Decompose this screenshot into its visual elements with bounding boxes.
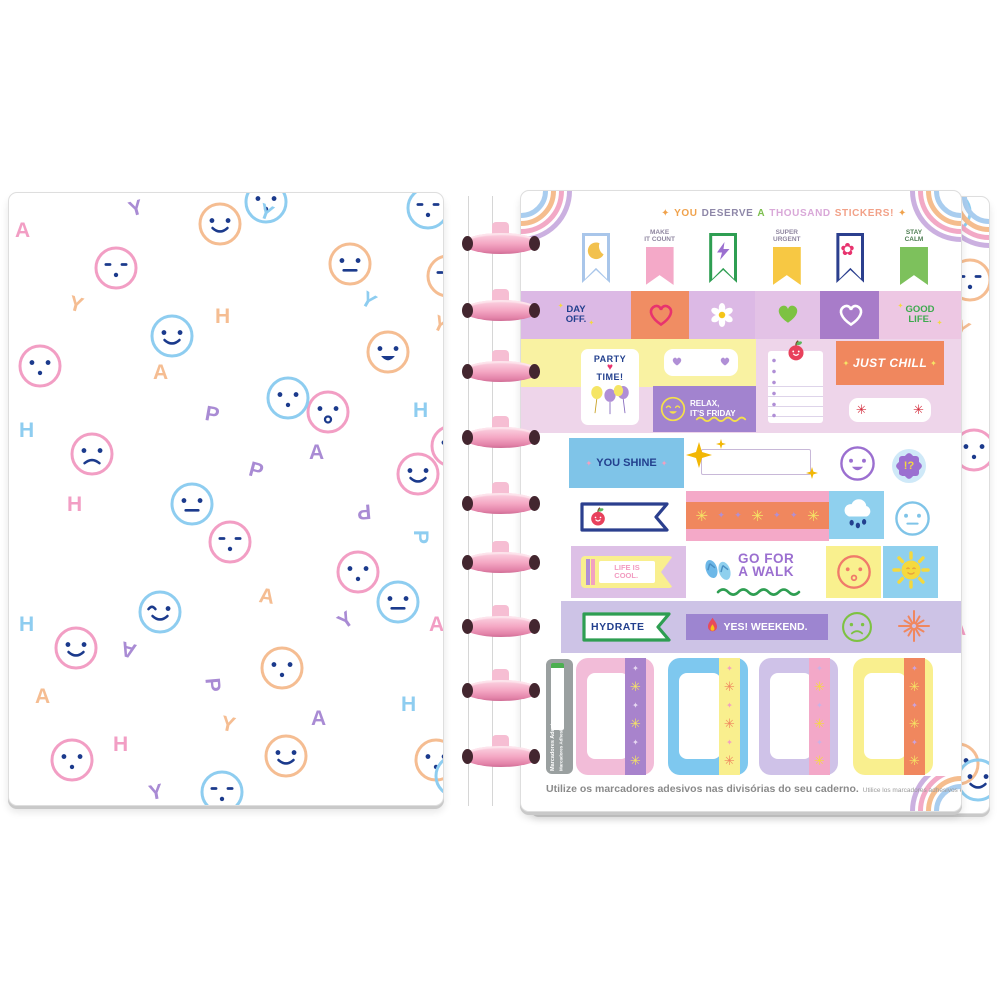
flame-icon: [706, 617, 723, 637]
tab-stripe-glyph: ✦: [911, 664, 918, 673]
disc-end: [529, 303, 540, 318]
asterisk-icon: ✳: [913, 401, 924, 419]
banner-flag: ✿: [833, 229, 867, 287]
disc-end: [462, 619, 473, 634]
pattern-letter: A: [309, 441, 324, 465]
tab-stripe: ✦✳✦✳✦✳: [719, 658, 740, 775]
pattern-letter: P: [246, 458, 266, 485]
stripe: [586, 559, 590, 585]
flip-flops-icon: [702, 555, 734, 583]
tab-marker-sticker: ✦✳✦✳✦✳: [668, 658, 748, 775]
binding-disc: [463, 361, 539, 382]
washi-glyph: ✦: [790, 510, 798, 521]
smiley-icon: [839, 445, 876, 482]
starburst-icon: [897, 609, 931, 643]
disc-end: [529, 619, 540, 634]
tab-markers-row: Marcadores Adesivos Marcadores Adhesivos…: [521, 656, 961, 776]
banner-flags-row: MAKE IT COUNTSUPER URGENT✿STAY CALM: [579, 229, 931, 287]
tab-cutout: [770, 673, 812, 759]
header-slogan: ✦YOUDESERVEATHOUSANDSTICKERS!✦: [659, 208, 909, 219]
pattern-letter: H: [67, 493, 82, 517]
notebook-product-photo: YAHYAPYHHPAPHAYAPHYAHYAPYHYA YAHYAPYHHPA…: [0, 0, 1000, 1000]
tab-marker-sticker: ✦✳✦✳✦✳: [576, 658, 654, 775]
caption-es: Utilice los marcadores adhesivos en las …: [863, 787, 962, 794]
pattern-letter: Y: [147, 780, 165, 806]
pattern-letter: H: [113, 733, 128, 757]
sticker-row-walk: LIFE IS COOL. GO FOR A WALK: [521, 546, 961, 601]
washi-glyph: ✳: [751, 507, 764, 525]
heart-icon: [775, 302, 801, 328]
tab-stripe-glyph: ✳: [630, 716, 641, 732]
apple-icon: [785, 340, 807, 362]
disc-body: [463, 427, 539, 448]
pattern-smiley-icon: [425, 253, 444, 299]
surprised-smiley-sticker: [826, 546, 881, 598]
pattern-letter: Y: [429, 311, 444, 339]
washi-glyph: ✦: [717, 510, 725, 521]
header-word: DESERVE: [702, 208, 754, 219]
tab-cutout: [587, 673, 629, 759]
banner-flag: SUPER URGENT: [770, 229, 804, 287]
banner-flag: [579, 229, 613, 287]
hydrate-sticker: HYDRATE: [581, 611, 673, 643]
banner-flag: STAY CALM: [897, 229, 931, 287]
spiral-binding-icon: [770, 355, 778, 419]
apple-pennant-sticker: [579, 501, 671, 533]
header-word: ✦: [661, 208, 670, 219]
tab-stripe-glyph: ✦: [632, 738, 639, 747]
go-for-a-walk-sticker: GO FOR A WALK: [696, 549, 846, 599]
header-word: STICKERS!: [835, 208, 894, 219]
pattern-letter: Y: [333, 607, 358, 635]
binding-disc: [463, 616, 539, 637]
tab-stripe: ✦✳✦✳✦✳: [625, 658, 646, 775]
disc-end: [529, 364, 540, 379]
rainbow-ring: [521, 191, 556, 226]
sticker-sheet-page: ✦YOUDESERVEATHOUSANDSTICKERS!✦ MAKE IT C…: [520, 190, 962, 812]
disc-end: [462, 749, 473, 764]
tab-stripe-glyph: ✳: [630, 753, 641, 769]
disc-end: [462, 555, 473, 570]
disc-end: [529, 430, 540, 445]
washi-glyph: ✳: [695, 507, 708, 525]
you-shine-sticker: YOU SHINE: [569, 438, 684, 488]
tab-stripe-glyph: ✦: [816, 738, 823, 747]
sticker-row-shine: YOU SHINE !?: [521, 433, 961, 491]
pattern-letter: P: [199, 677, 224, 693]
happy-pattern: YAHYAPYHHPAPHAYAPHYAHYAPYHYA: [9, 193, 443, 805]
rainbow-ring: [918, 191, 961, 234]
smiley-icon: [836, 554, 872, 590]
pattern-smiley-icon: [259, 645, 305, 691]
disc-end: [462, 496, 473, 511]
sticker-row-hearts: DAY OFF.GOOD LIFE.: [521, 291, 961, 339]
pattern-smiley-icon: [207, 519, 253, 565]
pattern-letter: H: [413, 399, 428, 423]
pattern-letter: A: [15, 219, 30, 243]
disc-end: [462, 364, 473, 379]
tab-stripe-glyph: ✳: [909, 753, 920, 769]
pattern-smiley-icon: [265, 375, 311, 421]
disc-body: [463, 616, 539, 637]
flag-shape: [773, 247, 801, 285]
color-block: [689, 291, 755, 339]
disc-end: [529, 236, 540, 251]
time-text: TIME!: [581, 372, 639, 382]
just-chill-sticker: JUST CHILL: [836, 341, 944, 385]
stripe: [591, 559, 595, 585]
rainbow-ring: [934, 191, 961, 218]
lightning-icon: [713, 241, 733, 261]
pattern-letter: H: [215, 305, 230, 329]
tab-stripe-glyph: ✦: [726, 664, 733, 673]
blank-label-sparkle: [701, 449, 811, 475]
tab-cutout: [864, 673, 906, 759]
washi-strip-sticker: ✳✦✦✳✦✦✳: [686, 491, 829, 541]
sparkle-icon: [806, 466, 818, 478]
heart-icon: [671, 354, 683, 372]
disc-end: [529, 749, 540, 764]
pattern-smiley-icon: [53, 625, 99, 671]
hydrate-text: HYDRATE: [581, 611, 655, 643]
side-label: Marcadores Adesivos Marcadores Adhesivos: [546, 659, 573, 774]
binding-disc: [463, 746, 539, 767]
pattern-letter: A: [118, 635, 139, 662]
binding-disc: [463, 233, 539, 254]
washi-pattern: ✳✦✦✳✦✦✳: [686, 502, 829, 529]
pattern-smiley-icon: [93, 245, 139, 291]
tab-stripe-glyph: ✦: [632, 664, 639, 673]
relax-friday-sticker: RELAX, IT'S FRIDAY: [653, 386, 756, 432]
pattern-letter: A: [429, 613, 444, 637]
flower-icon: ✿: [840, 241, 860, 261]
header-word: THOUSAND: [769, 208, 830, 219]
pattern-smiley-icon: [433, 753, 444, 799]
instructions-caption: Utilize os marcadores adesivos nas divis…: [546, 783, 962, 795]
pattern-letter: A: [257, 584, 275, 610]
pattern-smiley-icon: [375, 579, 421, 625]
disc-end: [529, 496, 540, 511]
pattern-smiley-icon: [137, 589, 183, 635]
rainbow-ring: [521, 191, 548, 218]
tab-stripe-glyph: ✳: [814, 753, 825, 769]
color-block: [820, 291, 879, 339]
blank-label-asterisks: ✳ ✳: [849, 398, 931, 422]
tab-stripe-glyph: ✳: [814, 679, 825, 695]
sticker-row-weekend: HYDRATE YES! WEEKEND.: [561, 601, 961, 653]
rain-cloud-sticker: [829, 491, 884, 539]
party-time-sticker: PARTY ♥ TIME!: [581, 349, 639, 425]
pattern-smiley-icon: [263, 733, 309, 779]
binding-disc: [463, 427, 539, 448]
disc-body: [463, 300, 539, 321]
heart-icon: [719, 354, 731, 372]
tab-marker-sticker: ✦✳✦✳✦✳: [759, 658, 838, 775]
tab-stripe-glyph: ✳: [724, 679, 735, 695]
tab-stripe-glyph: ✦: [632, 701, 639, 710]
yes-weekend-sticker: YES! WEEKEND.: [686, 614, 828, 640]
wavy-line-icon: [716, 583, 801, 601]
flag-label: SUPER URGENT: [756, 229, 818, 244]
heart-icon: ♥: [581, 364, 639, 372]
pattern-letter: A: [153, 361, 168, 385]
header-word: YOU: [674, 208, 697, 219]
sparkle-icon: [686, 442, 712, 468]
washi-glyph: ✳: [807, 507, 820, 525]
sparkle-icon: [716, 436, 726, 446]
color-block: [631, 291, 689, 339]
pattern-letter: Y: [66, 292, 86, 319]
pattern-letter: Y: [356, 287, 380, 315]
disc-end: [462, 236, 473, 251]
tab-stripe-glyph: ✳: [630, 679, 641, 695]
life-cool-text: LIFE IS COOL.: [599, 561, 655, 583]
banner-flag: [706, 229, 740, 287]
tab-stripe: ✦✳✦✳✦✳: [904, 658, 925, 775]
disc-body: [463, 552, 539, 573]
binding-disc: [463, 493, 539, 514]
pattern-letter: Y: [219, 712, 238, 738]
flag-label: STAY CALM: [883, 229, 945, 244]
disc-end: [462, 303, 473, 318]
sticker-row-weather: ✳✦✦✳✦✦✳: [521, 491, 961, 546]
pennant-shape: LIFE IS COOL.: [581, 556, 673, 588]
pattern-letter: A: [311, 707, 326, 731]
sticker-row-party: RELAX, IT'S FRIDAY PARTY ♥ TIME! JUST CH…: [521, 339, 961, 433]
binding-disc: [463, 552, 539, 573]
banner-flag: MAKE IT COUNT: [643, 229, 677, 287]
neutral-smiley-sticker: [889, 495, 935, 541]
pattern-letter: H: [401, 693, 416, 717]
blank-label-hearts: [664, 349, 738, 376]
washi-glyph: ✦: [734, 510, 742, 521]
tab-cutout: [679, 673, 721, 759]
pattern-letter: H: [19, 419, 34, 443]
tab-stripe-glyph: ✦: [911, 701, 918, 710]
tab-stripe: ✦✳✦✳✦✳: [809, 658, 830, 775]
header-word: A: [757, 208, 765, 219]
heart-outline-icon: [837, 302, 863, 328]
disc-body: [463, 233, 539, 254]
pattern-smiley-icon: [405, 192, 444, 231]
pattern-smiley-icon: [327, 241, 373, 287]
tab-stripe-glyph: ✳: [724, 753, 735, 769]
yes-weekend-text: YES! WEEKEND.: [723, 621, 807, 633]
disc-end: [529, 683, 540, 698]
flag-label: MAKE IT COUNT: [629, 229, 691, 244]
pattern-smiley-icon: [197, 201, 243, 247]
pattern-letter: P: [356, 498, 372, 523]
tab-stripe-glyph: ✦: [911, 738, 918, 747]
interrobang-text: !?: [892, 449, 926, 483]
block-text: GOOD LIFE.: [905, 305, 934, 326]
tab-stripe-glyph: ✦: [726, 738, 733, 747]
pattern-letter: H: [19, 613, 34, 637]
smiley-icon: [894, 500, 931, 537]
pattern-smiley-icon: [305, 389, 351, 435]
rainbow-ring: [926, 191, 961, 226]
tab-stripe-glyph: ✦: [816, 701, 823, 710]
disc-end: [462, 683, 473, 698]
notepad-sticker: [768, 351, 823, 423]
flag-shape: [646, 247, 674, 285]
tab-stripe-glyph: ✳: [909, 679, 920, 695]
rain-cloud-icon: [839, 497, 875, 534]
asterisk-icon: ✳: [856, 401, 867, 419]
wavy-line-icon: [695, 409, 747, 427]
sad-smiley-icon: [841, 611, 873, 643]
daisy-icon: [709, 302, 735, 328]
pattern-smiley-icon: [149, 313, 195, 359]
pattern-letter: Y: [126, 196, 146, 223]
sun-sticker: [883, 546, 938, 598]
disc-body: [463, 680, 539, 701]
washi-glyph: ✦: [773, 510, 781, 521]
rainbow-ring: [521, 191, 564, 234]
binding-disc: [463, 300, 539, 321]
life-is-cool-sticker: LIFE IS COOL.: [571, 546, 686, 598]
tab-stripe-glyph: ✦: [816, 664, 823, 673]
moon-icon: [586, 241, 606, 261]
binding-disc: [463, 680, 539, 701]
caption-pt: Utilize os marcadores adesivos nas divis…: [546, 783, 859, 795]
tab-marker-sticker: ✦✳✦✳✦✳: [853, 658, 933, 775]
sun-icon: [891, 550, 931, 595]
tab-stripe-glyph: ✳: [909, 716, 920, 732]
side-label-text: Marcadores Adesivos Marcadores Adhesivos: [549, 725, 571, 771]
header-word: ✦: [898, 208, 907, 219]
tab-stripe-glyph: ✳: [724, 716, 735, 732]
tab-stripe-glyph: ✳: [814, 716, 825, 732]
pattern-letter: P: [203, 402, 221, 428]
left-cover-page: YAHYAPYHHPAPHAYAPHYAHYAPYHYA: [8, 192, 444, 806]
pattern-letter: P: [408, 530, 432, 544]
balloons-icon: [581, 385, 639, 420]
pattern-smiley-icon: [17, 343, 63, 389]
go-walk-text: GO FOR A WALK: [738, 553, 794, 579]
disc-body: [463, 746, 539, 767]
disc-end: [462, 430, 473, 445]
block-text: DAY OFF.: [566, 305, 587, 326]
tab-stripe-glyph: ✦: [726, 701, 733, 710]
heart-outline-icon: [647, 302, 673, 328]
pattern-smiley-icon: [429, 423, 444, 469]
disc-end: [529, 555, 540, 570]
disc-body: [463, 493, 539, 514]
interrobang-badge: !?: [892, 449, 926, 483]
disc-body: [463, 361, 539, 382]
pattern-smiley-icon: [69, 431, 115, 477]
pattern-letter: A: [35, 685, 50, 709]
apple-icon: [588, 507, 608, 527]
smiley-icon: [660, 396, 686, 422]
color-block: GOOD LIFE.: [879, 291, 961, 339]
flag-shape: [900, 247, 928, 285]
pattern-smiley-icon: [365, 329, 411, 375]
pattern-smiley-icon: [49, 737, 95, 783]
color-block: [755, 291, 820, 339]
pattern-smiley-icon: [199, 769, 245, 806]
